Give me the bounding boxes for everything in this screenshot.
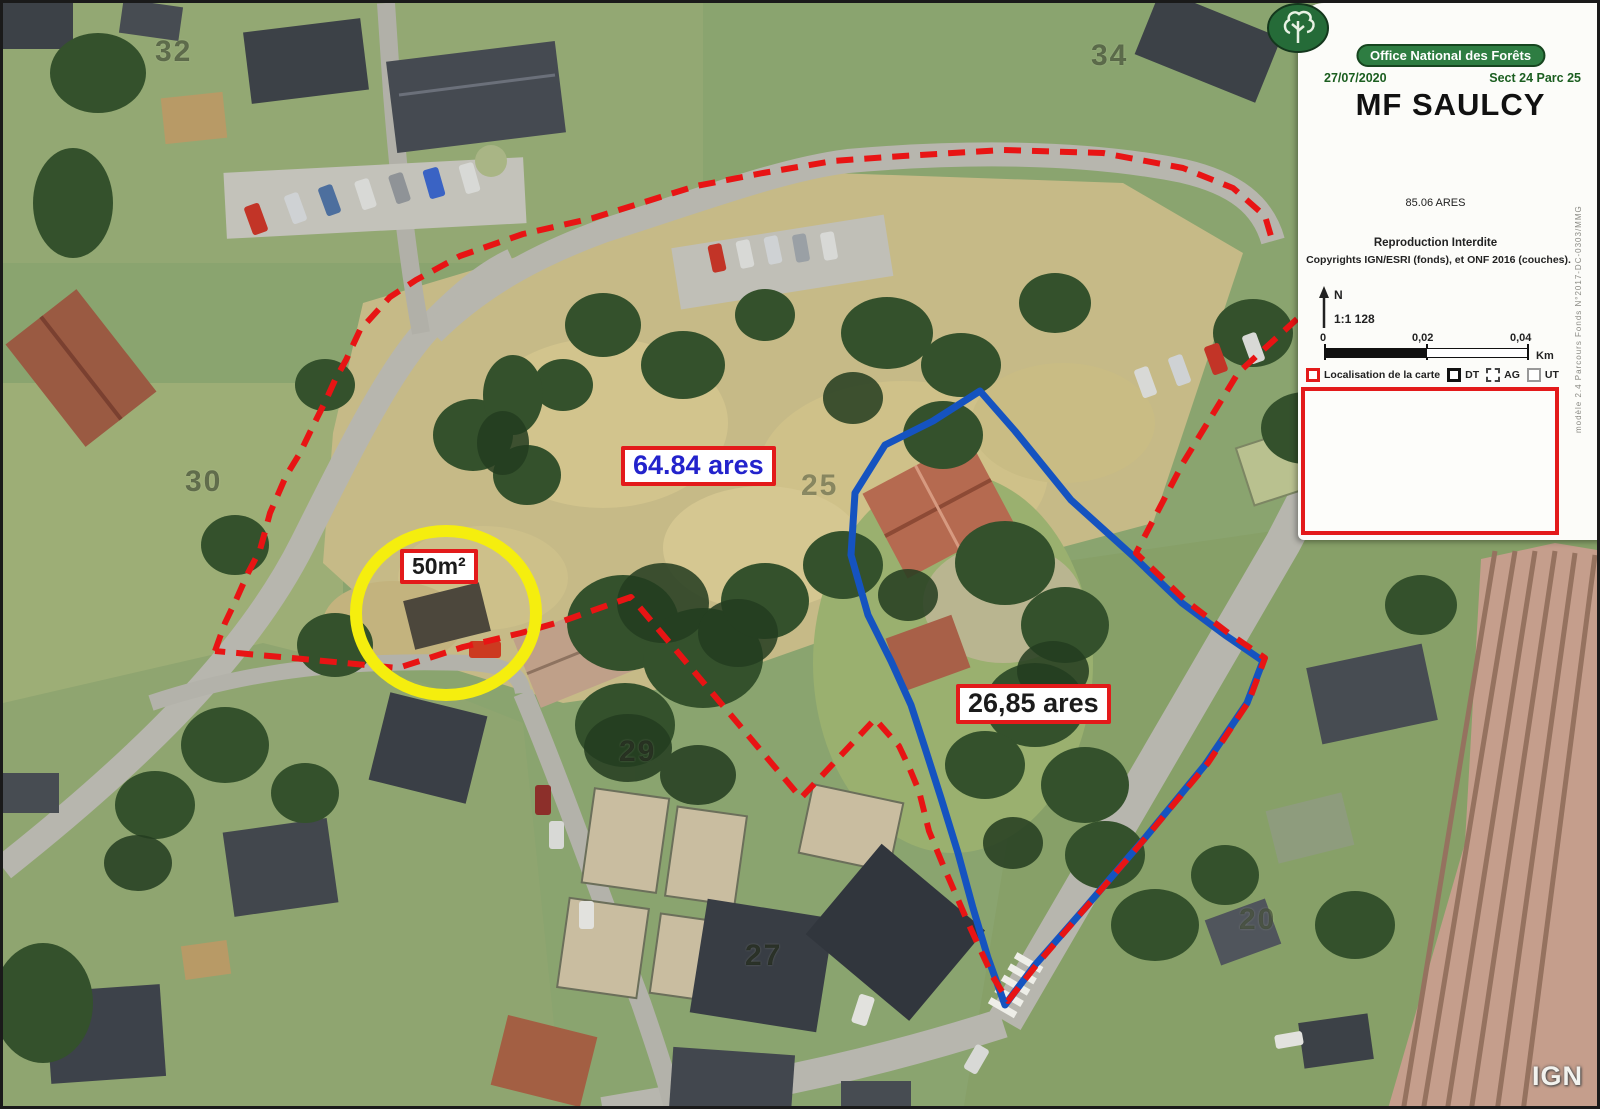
ign-watermark: IGN: [1532, 1061, 1583, 1092]
sector-parcel-ref: Sect 24 Parc 25: [1489, 71, 1581, 85]
legend-label: Localisation de la carte: [1324, 369, 1440, 381]
legend-item-localisation: Localisation de la carte: [1306, 368, 1440, 382]
red-dashed-boundary: [215, 150, 1297, 1001]
legend-label: AG: [1504, 369, 1520, 381]
scale-tick: 0: [1320, 332, 1326, 344]
scale-bar-filled: [1325, 349, 1426, 357]
legend-item-dt: DT: [1447, 368, 1479, 382]
parcel-number: 20: [1239, 903, 1276, 937]
onf-info-panel: Office National des Forêts 27/07/2020 Se…: [1298, 3, 1600, 540]
parcel-number: 32: [155, 35, 192, 69]
parcel-number: 27: [745, 939, 782, 973]
legend-label: UT: [1545, 369, 1559, 381]
legend-item-ut: UT: [1527, 368, 1559, 382]
scale-tick: 0,02: [1412, 332, 1433, 344]
onf-logo-icon: [1266, 3, 1330, 53]
scale-unit: Km: [1536, 350, 1554, 362]
total-area: 85.06 ARES: [1298, 197, 1573, 209]
localisation-inset-frame: [1301, 387, 1559, 535]
parcel-number: 34: [1091, 39, 1128, 73]
legend-label: DT: [1465, 369, 1479, 381]
scale-tick: 0,04: [1510, 332, 1531, 344]
legend-item-ag: AG: [1486, 368, 1520, 382]
area-label-main: 64.84 ares: [621, 446, 776, 486]
panel-side-note: modèle 2.4 Parcours Fonds N°2017-DC-0303…: [1574, 63, 1583, 433]
parcel-number: 25: [801, 469, 838, 503]
parcel-number: 30: [185, 465, 222, 499]
scale-bar-empty: [1426, 349, 1527, 357]
copyright-notice-line2: Copyrights IGN/ESRI (fonds), et ONF 2016…: [1298, 254, 1579, 266]
map-title: MF SAULCY: [1298, 87, 1600, 123]
legend-gray-box-icon: [1527, 368, 1541, 382]
legend-black-box-icon: [1447, 368, 1461, 382]
map-date: 27/07/2020: [1324, 71, 1387, 85]
panel-date-row: 27/07/2020 Sect 24 Parc 25: [1324, 71, 1581, 85]
parcel-number: 29: [619, 735, 656, 769]
building-area-label: 50m²: [400, 549, 478, 584]
area-label-secondary: 26,85 ares: [956, 684, 1111, 724]
onf-org-banner: Office National des Forêts: [1356, 44, 1545, 67]
copyright-notice-line1: Reproduction Interdite: [1298, 237, 1573, 249]
scale-bar: [1324, 348, 1528, 358]
north-label: N: [1334, 288, 1343, 302]
scale-ratio: 1:1 128: [1334, 312, 1375, 326]
legend-red-box-icon: [1306, 368, 1320, 382]
legend-row: Localisation de la carte DT AG UT: [1306, 368, 1569, 382]
scanned-map-document: 64.84 ares 26,85 ares 50m² 32 34 30 25 2…: [0, 0, 1600, 1109]
legend-dashed-box-icon: [1486, 368, 1500, 382]
